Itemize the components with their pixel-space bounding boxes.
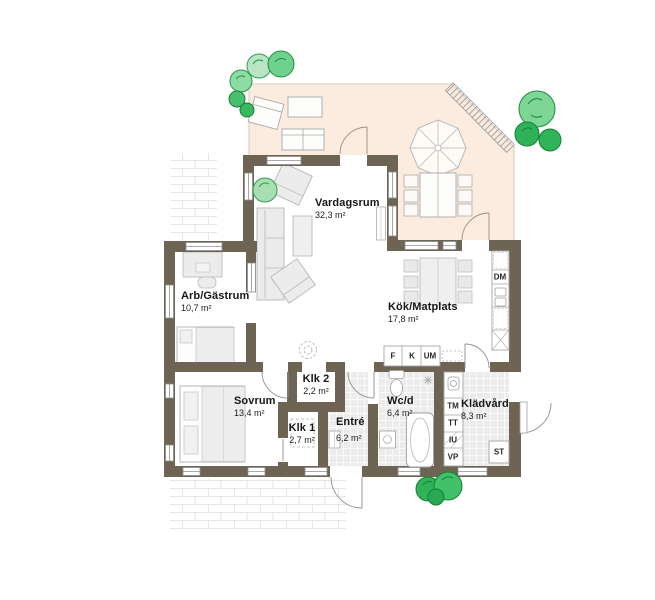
floorplan-page: Vardagsrum 32,3 m² Arb/Gästrum 10,7 m² K…	[0, 0, 655, 600]
room-name: Vardagsrum	[315, 197, 380, 210]
room-name: Klk 2	[303, 373, 330, 386]
coffee-table	[293, 216, 312, 256]
label-k-freezer: K	[409, 352, 415, 361]
desk-chair	[198, 277, 216, 288]
room-name: Klädvård	[461, 398, 509, 411]
label-tt-tumble-dryer: TT	[448, 419, 458, 428]
terrace-sofa	[282, 129, 324, 150]
room-area: 32,3 m²	[315, 210, 380, 221]
label-f-fridge: F	[391, 352, 396, 361]
room-label-vardagsrum: Vardagsrum 32,3 m²	[315, 197, 380, 221]
room-label-wcd: Wc/d 6,4 m²	[387, 395, 414, 419]
room-area: 8,3 m²	[461, 411, 509, 422]
single-bed	[177, 327, 234, 363]
room-area: 2,7 m²	[289, 435, 316, 446]
label-tm-washing-machine: TM	[447, 402, 459, 411]
room-area: 13,4 m²	[234, 408, 276, 419]
kitchen-counter	[492, 251, 509, 350]
room-label-sovrum: Sovrum 13,4 m²	[234, 395, 276, 419]
floor-drain-icon	[424, 376, 433, 385]
room-area: 10,7 m²	[181, 303, 249, 314]
label-iu-ironing-unit: IU	[449, 436, 457, 445]
room-label-entre: Entré 6,2 m²	[336, 416, 365, 444]
room-area: 6,4 m²	[387, 408, 414, 419]
room-area: 2,2 m²	[303, 386, 330, 397]
label-um-oven-micro: UM	[424, 352, 436, 361]
room-name: Sovrum	[234, 395, 276, 408]
label-vp-heat-pump: VP	[448, 453, 459, 462]
terrace-side-table	[288, 97, 322, 117]
toilet-icon	[389, 371, 404, 397]
terrace-dining-set	[404, 173, 472, 217]
room-name: Kök/Matplats	[388, 301, 458, 314]
room-name: Wc/d	[387, 395, 414, 408]
tree-cluster-right	[515, 91, 561, 151]
room-label-arb-gastrum: Arb/Gästrum 10,7 m²	[181, 290, 249, 314]
indoor-plant	[253, 178, 277, 202]
washbasin-icon	[380, 431, 396, 448]
room-label-kladvard: Klädvård 8,3 m²	[461, 398, 509, 422]
room-name: Arb/Gästrum	[181, 290, 249, 303]
room-area: 17,8 m²	[388, 314, 458, 325]
room-label-kok-matplats: Kök/Matplats 17,8 m²	[388, 301, 458, 325]
room-label-klk2: Klk 2 2,2 m²	[303, 373, 330, 397]
washing-machine-icon	[448, 377, 459, 390]
label-dm-dishwasher: DM	[494, 273, 506, 282]
room-name: Entré	[336, 416, 365, 429]
room-name: Klk 1	[289, 422, 316, 435]
room-label-klk1: Klk 1 2,7 m²	[289, 422, 316, 446]
label-st-cleaning-closet: ST	[494, 448, 504, 457]
exterior-door-leaf	[520, 402, 527, 433]
parasol-icon	[410, 120, 466, 176]
floorplan-canvas	[0, 0, 655, 600]
bathtub-icon	[407, 413, 434, 467]
kitchen-dining-set	[404, 258, 472, 305]
room-area: 6,2 m²	[336, 433, 365, 444]
